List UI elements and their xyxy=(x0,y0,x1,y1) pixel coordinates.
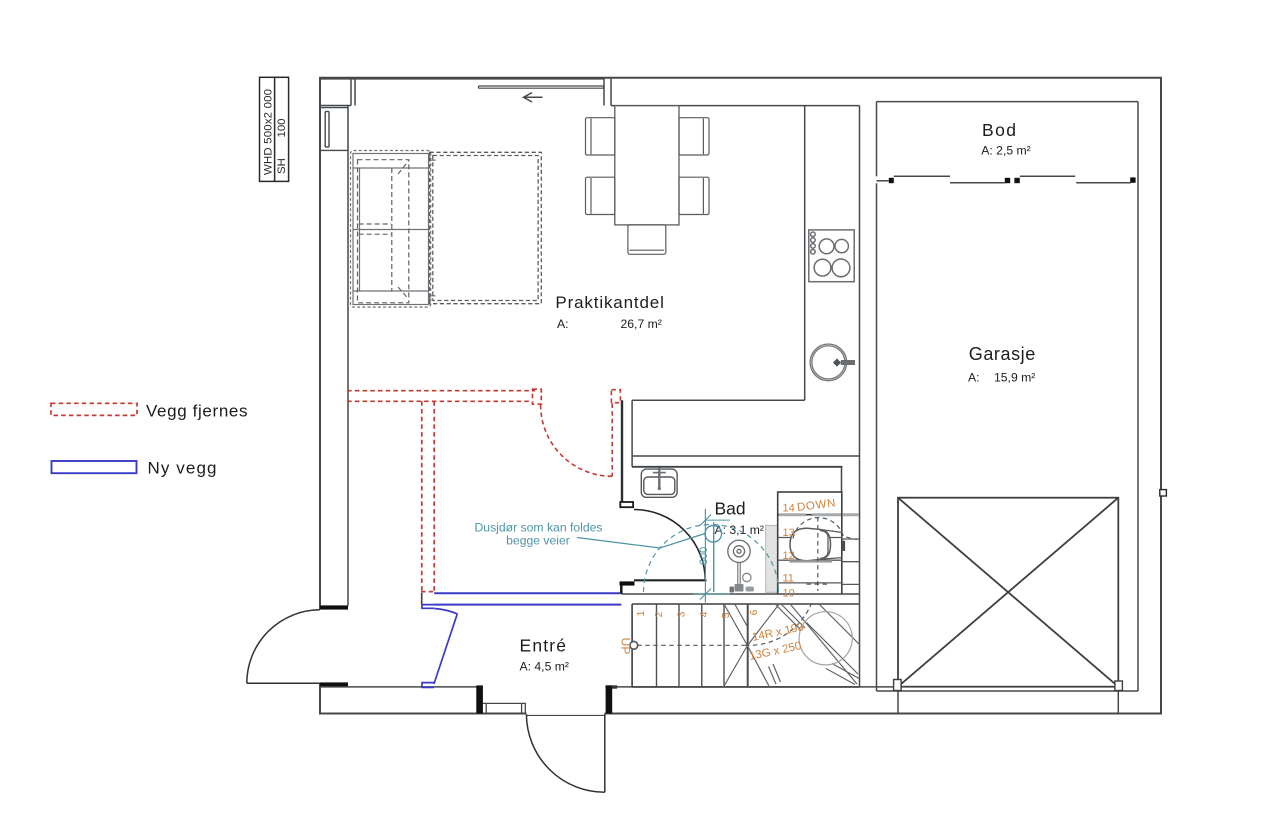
svg-text:13: 13 xyxy=(783,527,795,539)
svg-text:Garasje: Garasje xyxy=(969,344,1036,364)
svg-text:Dusjdør som kan foldes: Dusjdør som kan foldes xyxy=(474,521,602,535)
svg-text:6: 6 xyxy=(748,609,760,615)
svg-text:Bod: Bod xyxy=(982,120,1016,140)
svg-text:Bad: Bad xyxy=(715,499,746,519)
svg-text:A: 4,5 m²: A: 4,5 m² xyxy=(520,660,569,674)
svg-text:10: 10 xyxy=(783,588,795,600)
svg-text:A: 2,5 m²: A: 2,5 m² xyxy=(981,144,1030,158)
svg-text:12: 12 xyxy=(783,550,795,562)
svg-text:A:: A: xyxy=(968,371,980,385)
svg-text:A:: A: xyxy=(557,317,569,331)
svg-text:14: 14 xyxy=(783,503,795,515)
svg-text:26,7 m²: 26,7 m² xyxy=(621,317,662,331)
svg-text:Vegg fjernes: Vegg fjernes xyxy=(146,402,248,421)
svg-text:SH: SH xyxy=(276,158,288,174)
svg-text:11: 11 xyxy=(783,573,794,585)
svg-text:Ny vegg: Ny vegg xyxy=(148,459,217,478)
svg-text:100: 100 xyxy=(276,118,288,137)
svg-text:600: 600 xyxy=(698,547,710,565)
svg-text:15,9 m²: 15,9 m² xyxy=(994,371,1035,385)
svg-text:5: 5 xyxy=(720,612,732,618)
svg-text:2: 2 xyxy=(653,611,665,617)
svg-text:Praktikantdel: Praktikantdel xyxy=(555,293,664,312)
svg-text:Entré: Entré xyxy=(520,636,567,656)
svg-text:4: 4 xyxy=(698,611,710,617)
svg-text:begge veier: begge veier xyxy=(506,534,570,548)
svg-text:1: 1 xyxy=(635,610,647,616)
svg-text:UP: UP xyxy=(619,638,633,655)
svg-text:WHD 500x2 000: WHD 500x2 000 xyxy=(262,89,274,175)
svg-text:3: 3 xyxy=(676,611,688,617)
